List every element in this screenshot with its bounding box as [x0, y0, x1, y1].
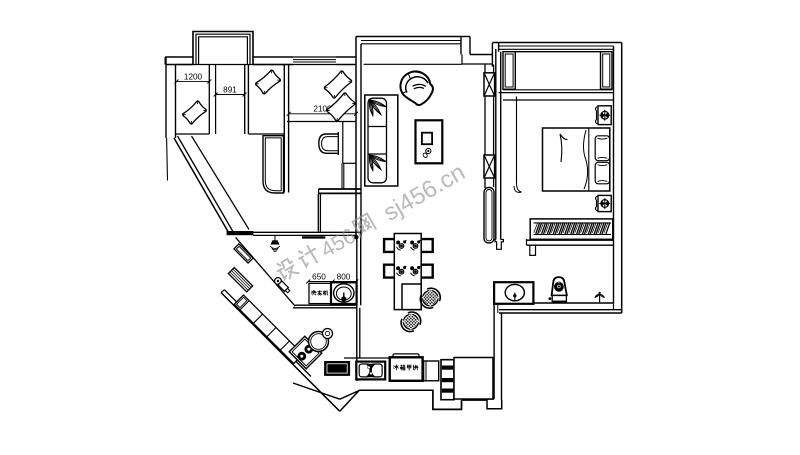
svg-text:891: 891: [223, 86, 237, 95]
svg-text:800: 800: [337, 272, 351, 281]
svg-text:650: 650: [312, 272, 326, 281]
svg-text:1200: 1200: [184, 73, 203, 82]
